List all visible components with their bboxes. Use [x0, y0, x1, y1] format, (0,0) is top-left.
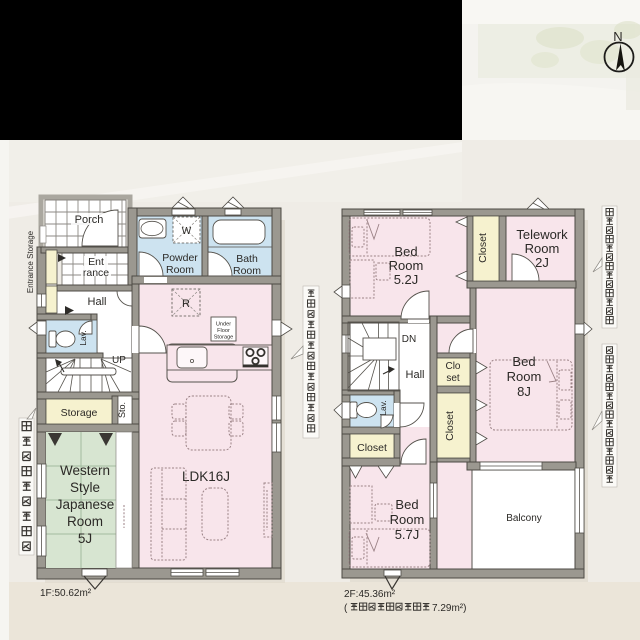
svg-text:Porch: Porch — [75, 214, 104, 226]
svg-text:Closet: Closet — [357, 442, 387, 454]
svg-text:Balcony: Balcony — [506, 513, 542, 524]
svg-text:Storage: Storage — [61, 407, 98, 419]
svg-text:set: set — [446, 373, 460, 384]
svg-text:Hall: Hall — [88, 296, 107, 308]
svg-text:Sto.: Sto. — [117, 402, 127, 418]
svg-text:5J: 5J — [78, 531, 92, 546]
svg-text:Closet: Closet — [477, 233, 489, 263]
svg-text:Entrance Storage: Entrance Storage — [26, 230, 35, 293]
svg-text:Room: Room — [390, 512, 425, 527]
svg-text:Style: Style — [70, 480, 100, 495]
svg-text:Clo: Clo — [445, 361, 460, 372]
svg-text:Room: Room — [67, 514, 103, 529]
svg-text:R: R — [182, 298, 190, 310]
svg-text:DN: DN — [402, 334, 416, 345]
svg-text:Under: Under — [216, 322, 231, 328]
svg-text:Room: Room — [166, 264, 194, 276]
svg-text:Japanese: Japanese — [56, 497, 115, 512]
svg-text:Bed: Bed — [512, 354, 535, 369]
svg-text:Lav.: Lav. — [78, 330, 88, 345]
svg-text:Bed: Bed — [395, 497, 418, 512]
svg-text:Room: Room — [525, 241, 560, 256]
svg-text:2J: 2J — [535, 255, 549, 270]
svg-text:8J: 8J — [517, 384, 531, 399]
svg-text:Powder: Powder — [162, 252, 198, 264]
svg-text:Floor: Floor — [217, 328, 230, 334]
svg-text:Lav.: Lav. — [378, 400, 388, 415]
svg-text:Room: Room — [507, 369, 542, 384]
svg-text:Bed: Bed — [394, 244, 417, 259]
svg-text:W: W — [182, 226, 192, 237]
svg-text:2F:45.36m²: 2F:45.36m² — [344, 589, 396, 600]
svg-text:Hall: Hall — [406, 369, 425, 381]
svg-text:LDK16J: LDK16J — [182, 469, 230, 484]
svg-text:1F:50.62m²: 1F:50.62m² — [40, 588, 92, 599]
svg-text:Storage: Storage — [214, 335, 234, 341]
svg-text:UP: UP — [112, 355, 126, 366]
svg-text:rance: rance — [83, 267, 109, 279]
svg-text:Room: Room — [233, 265, 261, 277]
svg-text:Bath: Bath — [236, 253, 258, 265]
svg-text:5.2J: 5.2J — [394, 272, 419, 287]
svg-text:N: N — [613, 29, 622, 44]
svg-text:Room: Room — [389, 258, 424, 273]
svg-text:7.29m²): 7.29m²) — [432, 603, 466, 614]
svg-text:Closet: Closet — [444, 411, 456, 441]
svg-text:Telework: Telework — [516, 227, 568, 242]
svg-text:Western: Western — [60, 463, 110, 478]
